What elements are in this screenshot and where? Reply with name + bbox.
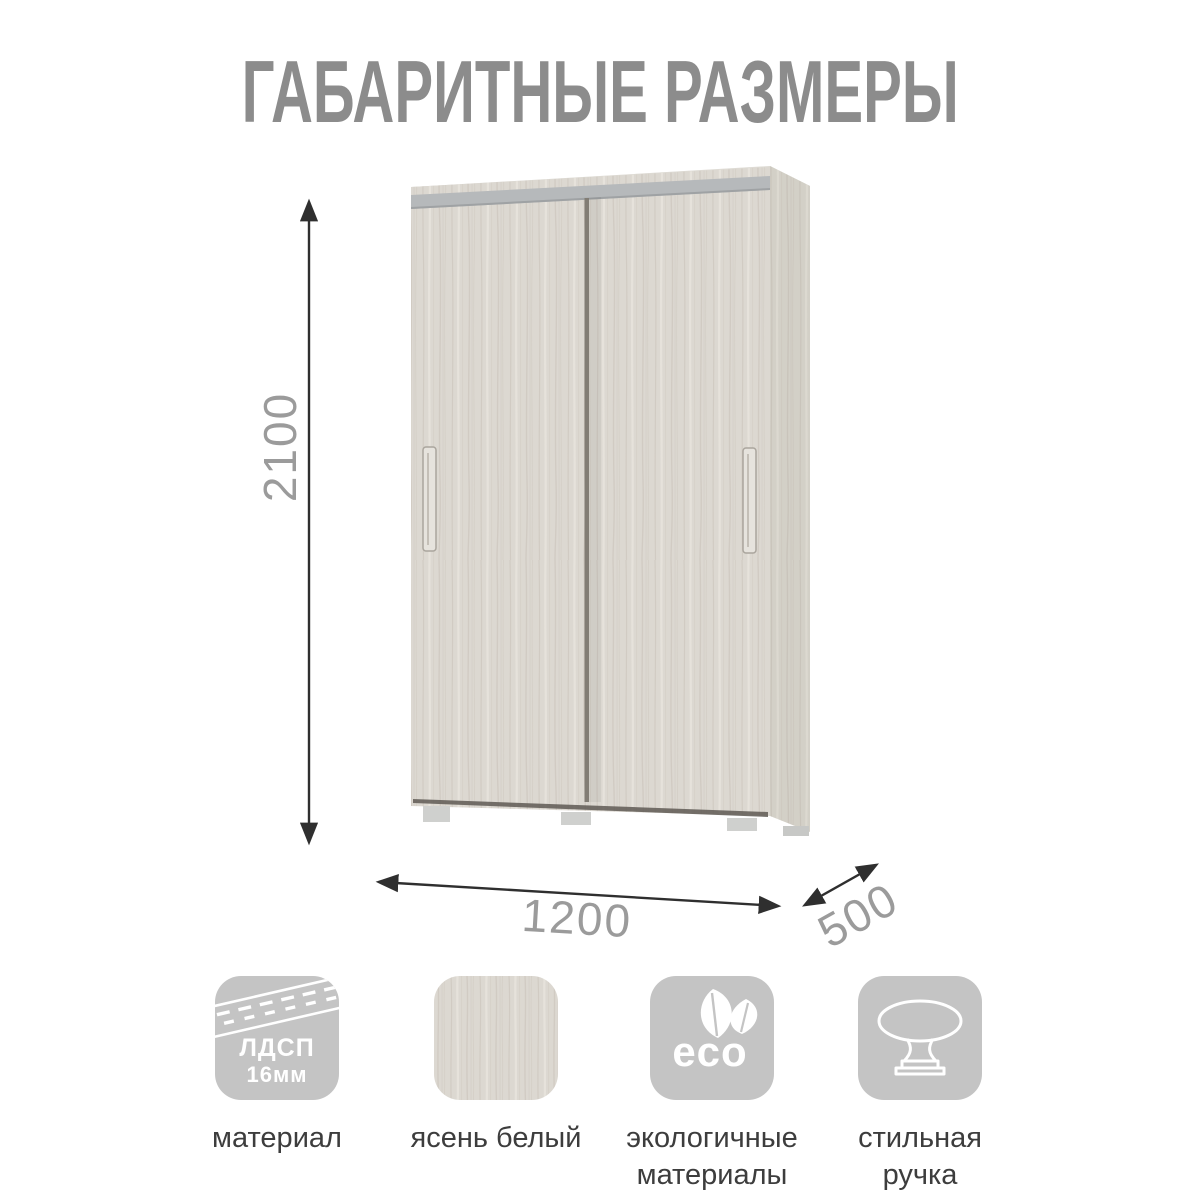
knob-icon [858, 976, 982, 1100]
feature-material: ЛДСП 16мм материал [167, 976, 387, 1157]
right-door-handle [743, 448, 756, 553]
eco-leaves-icon: eco [650, 976, 774, 1100]
wardrobe-dimension-diagram: 2100 1200 500 [0, 0, 1200, 965]
wood-swatch-icon [434, 976, 558, 1100]
depth-dimension-label: 500 [809, 872, 907, 958]
feature-caption: экологичные материалы [602, 1120, 822, 1194]
feature-caption: материал [167, 1120, 387, 1157]
height-dimension-label: 2100 [254, 392, 306, 502]
product-dimensions-infographic: ГАБАРИТНЫЕ РАЗМЕРЫ [0, 0, 1200, 1200]
chipboard-badge-line1: ЛДСП [239, 1034, 314, 1062]
feature-eco: eco экологичные материалы [602, 976, 822, 1194]
feature-finish-color: ясень белый [386, 976, 606, 1157]
feature-handle: стильная ручка [810, 976, 1030, 1194]
chipboard-badge-line2: 16мм [246, 1062, 307, 1087]
feature-caption: стильная ручка [810, 1120, 1030, 1194]
left-door-handle [423, 447, 436, 551]
door-seam [585, 198, 590, 802]
wardrobe-illustration [411, 166, 810, 836]
width-dimension-label: 1200 [520, 889, 633, 947]
chipboard-edge-icon: ЛДСП 16мм [215, 976, 339, 1100]
eco-badge-text: eco [672, 1028, 747, 1075]
feature-caption: ясень белый [386, 1120, 606, 1157]
